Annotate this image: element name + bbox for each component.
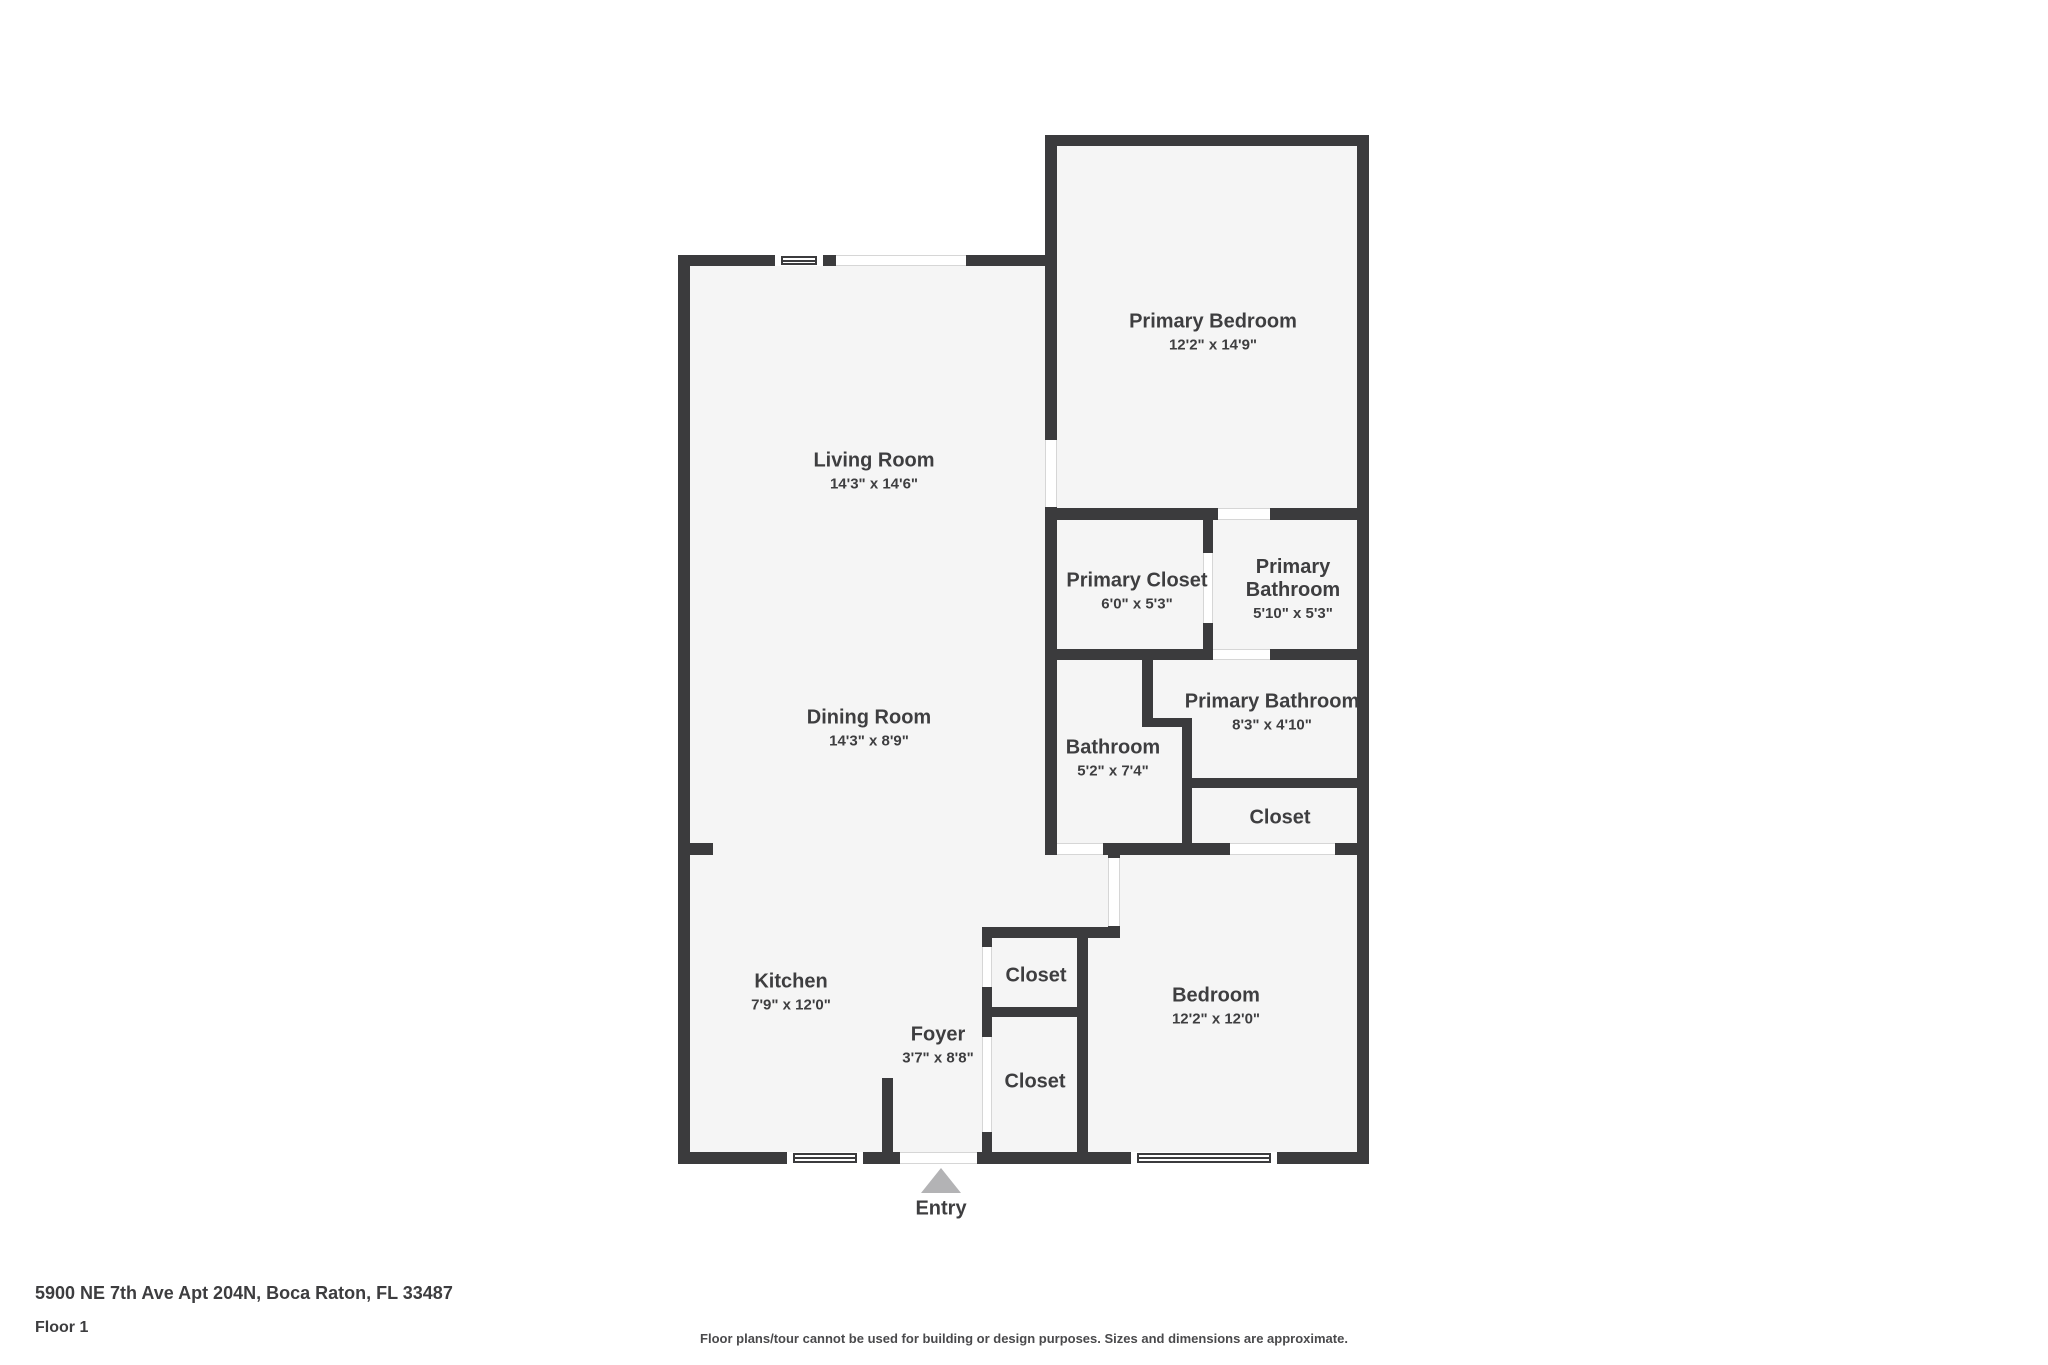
floor-plan-page: Primary Bedroom 12'2" x 14'9" Living Roo… [0,0,2048,1365]
room-name: Living Room [813,449,934,472]
wall-primary-bedroom-top [1045,135,1369,146]
entry-label: Entry [915,1198,966,1221]
entry-arrow-icon [921,1168,961,1193]
room-dims: 5'2" x 7'4" [1066,762,1160,779]
room-label-foyer: Foyer 3'7" x 8'8" [902,1023,973,1066]
room-label-primary-closet: Primary Closet 6'0" x 5'3" [1066,569,1207,612]
room-label-kitchen: Kitchen 7'9" x 12'0" [751,970,831,1013]
wall-closet-right [1077,938,1088,1163]
room-dims: 12'2" x 14'9" [1129,336,1297,353]
wall-closet-top [982,927,1120,938]
room-name: Kitchen [751,970,831,993]
wall-kitchen-foyer-stub [882,1078,893,1163]
room-name: Closet [1004,1071,1065,1094]
room-name: Dining Room [807,706,931,729]
wall-bathroom-right-upper [1142,660,1153,727]
door-primary-bathroom-lower [1213,649,1270,660]
room-label-living-room: Living Room 14'3" x 14'6" [813,449,934,492]
wall-exterior-left [678,255,690,1163]
window-bedroom [1131,1152,1277,1164]
floor-label: Floor 1 [35,1319,88,1337]
room-label-primary-bathroom-lower: Primary Bathroom 8'3" x 4'10" [1185,690,1360,733]
room-name: Bedroom [1172,984,1260,1007]
window-kitchen [787,1152,863,1164]
door-closet-lower [982,1037,992,1132]
room-dims: 12'2" x 12'0" [1172,1010,1260,1027]
room-name: Primary Bathroom [1185,690,1360,713]
room-dims: 5'10" x 5'3" [1213,605,1373,622]
wall-primary-bathroom2-bottom [1182,778,1369,788]
room-name: Primary Closet [1066,569,1207,592]
room-dims: 7'9" x 12'0" [751,996,831,1013]
room-label-closet-lower: Closet [1004,1071,1065,1094]
window-living-room [775,255,823,266]
wall-closet-divider [982,1007,1088,1017]
room-label-closet-right: Closet [1249,807,1310,830]
room-label-closet-upper: Closet [1005,965,1066,988]
door-bedroom [1108,858,1120,926]
room-dims: 14'3" x 8'9" [807,732,931,749]
room-dims: 6'0" x 5'3" [1066,595,1207,612]
room-label-primary-bedroom: Primary Bedroom 12'2" x 14'9" [1129,310,1297,353]
room-label-bedroom: Bedroom 12'2" x 12'0" [1172,984,1260,1027]
door-primary-bedroom [1045,440,1057,507]
room-dims: 14'3" x 14'6" [813,475,934,492]
opening-closet-right [1230,843,1335,855]
room-name: Closet [1249,807,1310,830]
opening-living-top [836,255,966,266]
room-name: Primary Bathroom [1213,556,1373,602]
room-name: Closet [1005,965,1066,988]
wall-closet-row-bottom [1045,649,1369,660]
room-name: Primary Bedroom [1129,310,1297,333]
door-closet-upper [982,947,992,987]
room-label-dining-room: Dining Room 14'3" x 8'9" [807,706,931,749]
door-primary-bathroom-upper [1218,508,1270,520]
door-bathroom [1057,843,1103,855]
wall-dining-kitchen-stub [690,843,713,855]
room-label-primary-bathroom-upper: Primary Bathroom 5'10" x 5'3" [1213,556,1373,622]
room-dims: 8'3" x 4'10" [1185,716,1360,733]
room-name: Foyer [902,1023,973,1046]
address-text: 5900 NE 7th Ave Apt 204N, Boca Raton, FL… [35,1283,453,1304]
opening-entry [900,1152,977,1164]
room-name: Bathroom [1066,736,1160,759]
disclaimer-text: Floor plans/tour cannot be used for buil… [700,1331,1348,1346]
room-dims: 3'7" x 8'8" [902,1049,973,1066]
room-label-bathroom: Bathroom 5'2" x 7'4" [1066,736,1160,779]
